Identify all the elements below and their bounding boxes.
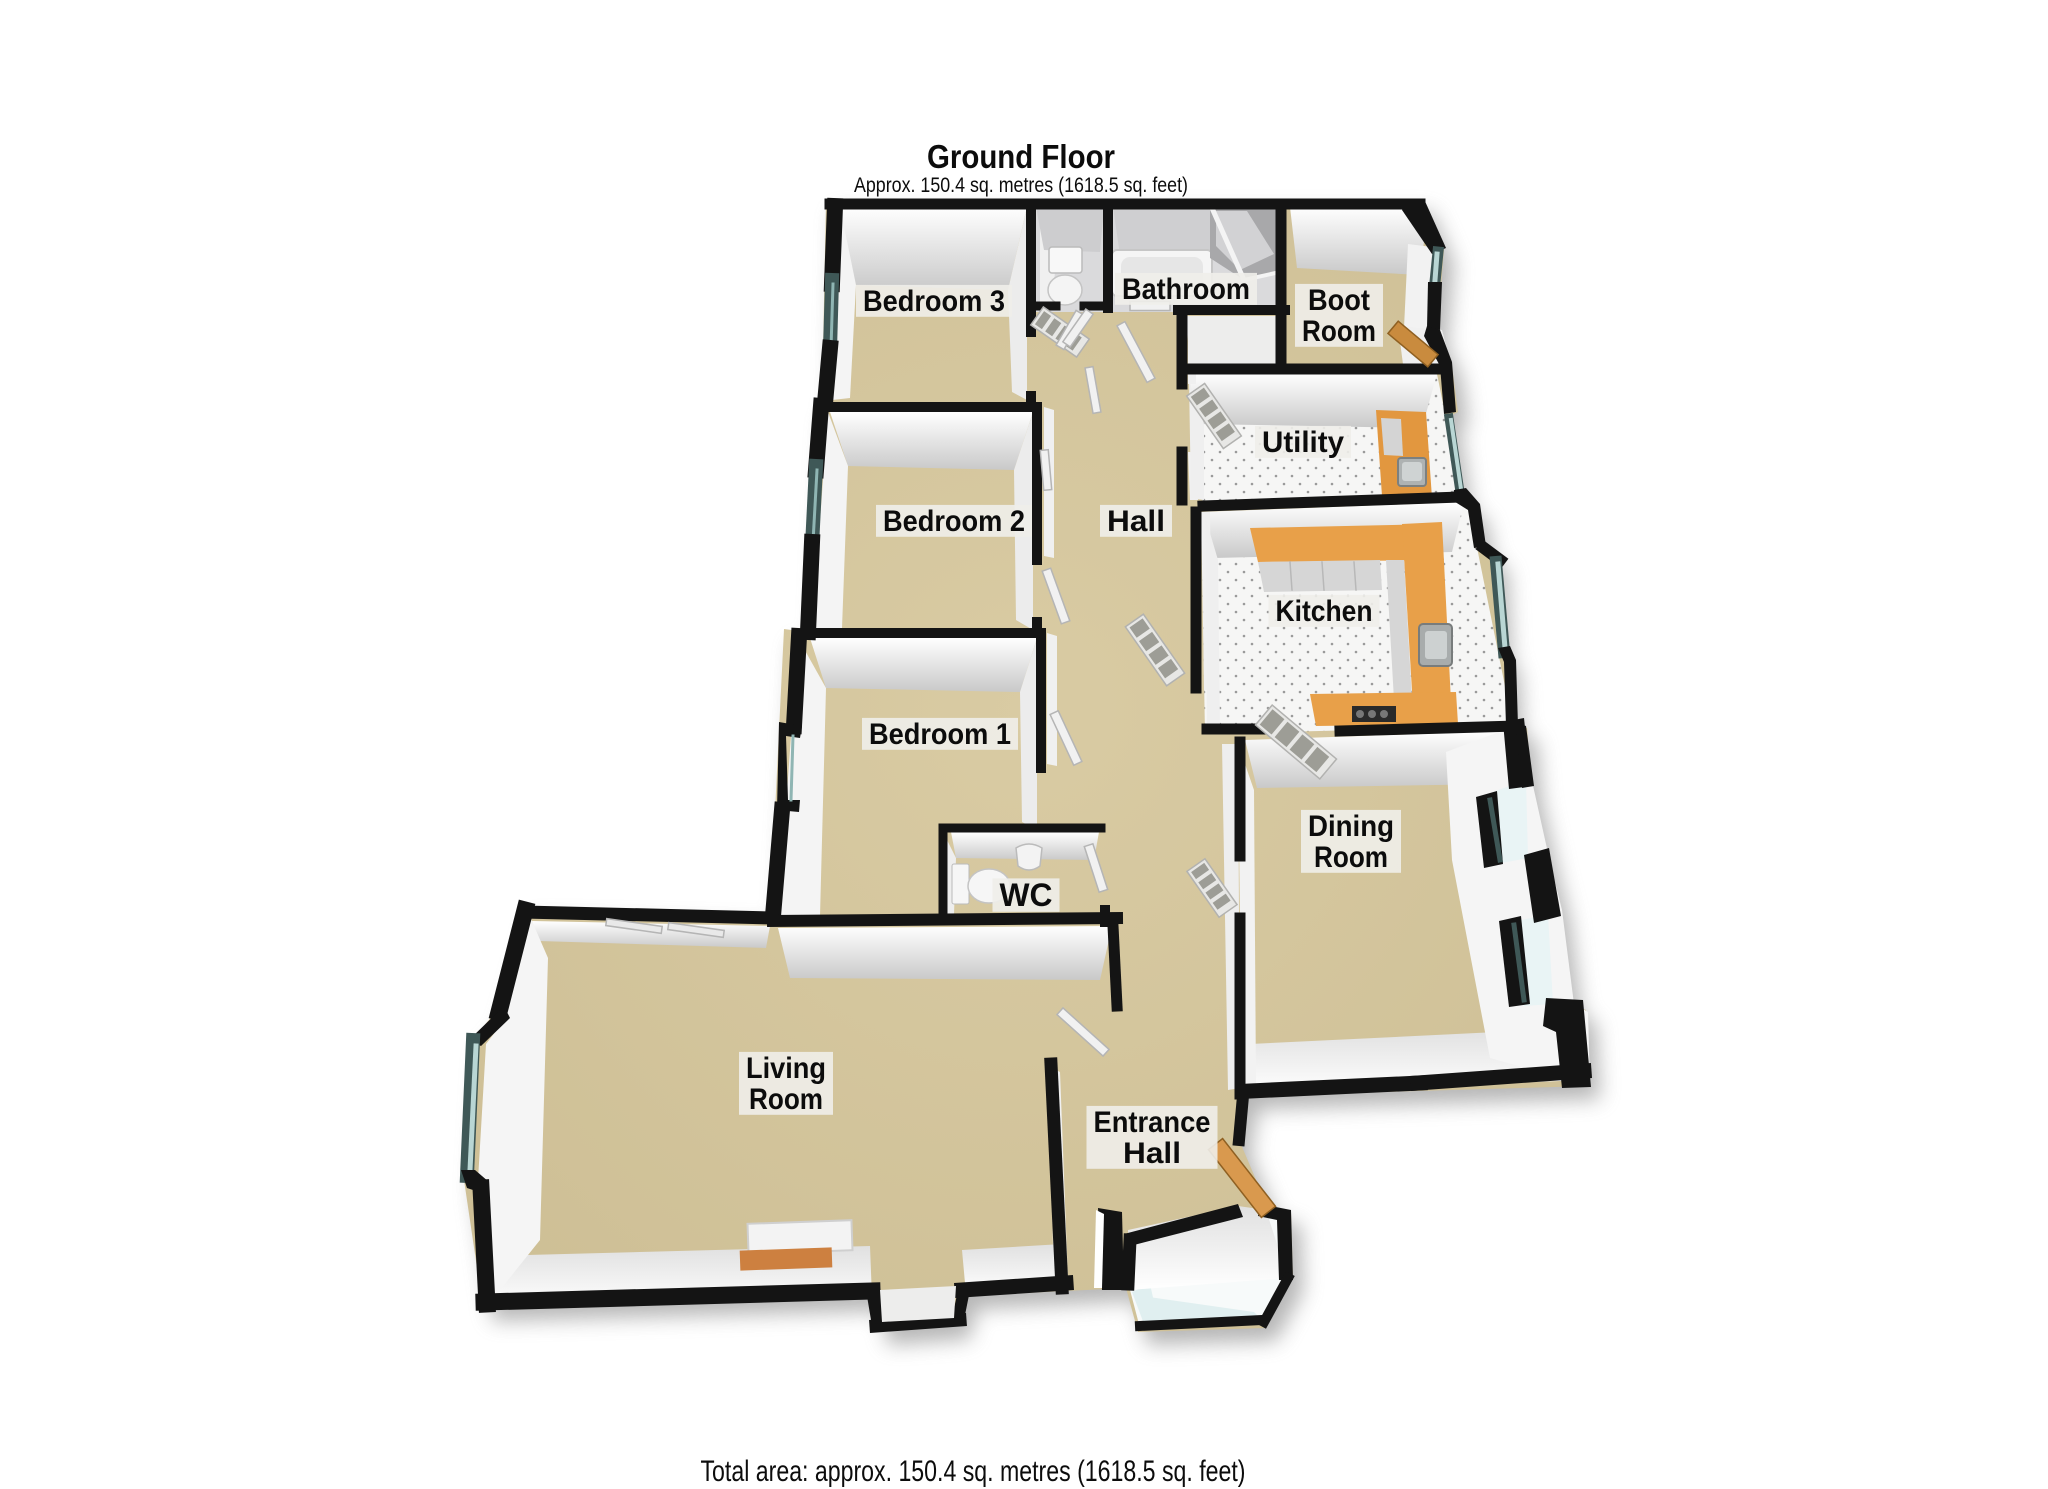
svg-text:Approx. 150.4 sq. metres (1618: Approx. 150.4 sq. metres (1618.5 sq. fee… — [854, 174, 1188, 197]
svg-text:Room: Room — [1302, 315, 1376, 348]
svg-text:WC: WC — [1000, 877, 1053, 913]
svg-text:Bedroom 3: Bedroom 3 — [863, 285, 1005, 318]
svg-text:Hall: Hall — [1123, 1137, 1181, 1170]
svg-text:Room: Room — [1314, 841, 1388, 874]
svg-text:Kitchen: Kitchen — [1276, 595, 1373, 628]
svg-text:Entrance: Entrance — [1094, 1106, 1211, 1139]
svg-text:Utility: Utility — [1262, 426, 1344, 459]
svg-text:Ground Floor: Ground Floor — [927, 138, 1115, 175]
svg-text:Bathroom: Bathroom — [1122, 273, 1250, 306]
svg-text:Hall: Hall — [1107, 505, 1165, 538]
svg-text:Dining: Dining — [1308, 810, 1394, 843]
svg-text:Boot: Boot — [1308, 284, 1370, 317]
svg-text:Bedroom 2: Bedroom 2 — [883, 505, 1025, 538]
svg-text:Total area: approx. 150.4 sq.: Total area: approx. 150.4 sq. metres (16… — [701, 1455, 1246, 1488]
svg-text:Room: Room — [749, 1083, 823, 1116]
svg-text:Bedroom 1: Bedroom 1 — [869, 718, 1011, 751]
svg-text:Living: Living — [746, 1052, 826, 1085]
